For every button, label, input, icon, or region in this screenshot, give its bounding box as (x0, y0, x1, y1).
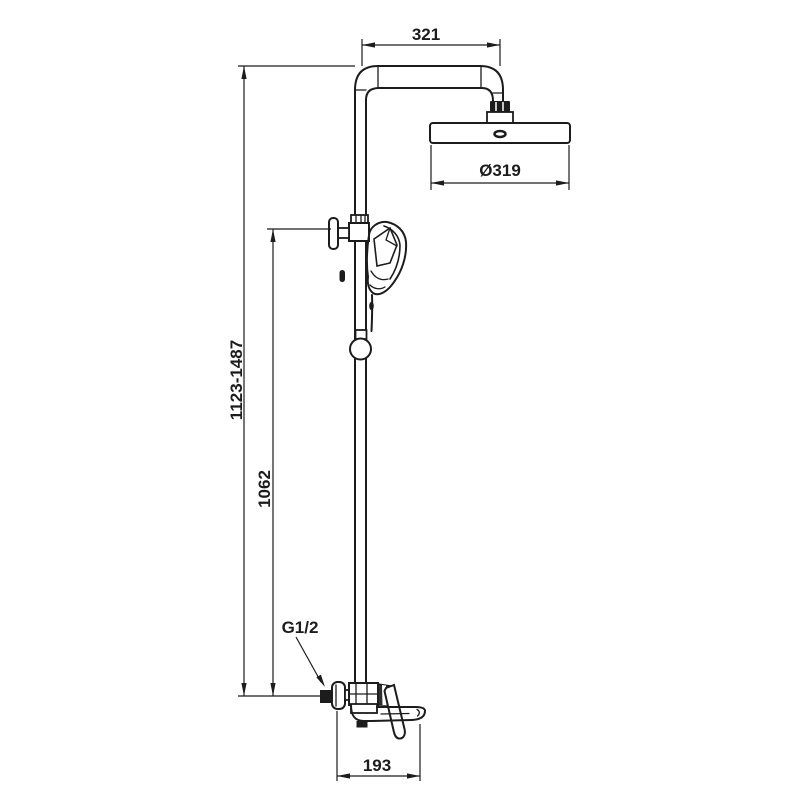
overhead-shower-head (430, 123, 570, 143)
hand-shower-handle (372, 295, 373, 331)
spout-projection-label: 193 (363, 756, 391, 775)
mixer-lever-handle (385, 685, 405, 739)
handle-clip (369, 302, 374, 311)
bath-mixer (320, 682, 425, 739)
drawing-canvas: 1123-1487 1062 321 Ø319 (0, 0, 800, 800)
height-range-label: 1123-1487 (227, 340, 246, 420)
slider-knob (350, 330, 371, 360)
riser-column (355, 89, 366, 683)
head-connector-nut (487, 101, 513, 123)
holder-lock (340, 270, 346, 282)
dimension-arm-projection: 321 (362, 25, 500, 66)
shower-arm (355, 66, 503, 101)
arm-projection-label: 321 (412, 25, 440, 44)
thread-label: G1/2 (282, 618, 319, 637)
diverter-valve (329, 215, 369, 249)
head-diameter-label: Ø319 (479, 161, 521, 180)
shower-system-technical-drawing: 1123-1487 1062 321 Ø319 (0, 0, 800, 800)
dimension-height-range: 1123-1487 (227, 66, 355, 696)
dimension-head-diameter: Ø319 (431, 145, 569, 190)
wall-flange (332, 682, 345, 709)
spout-aerator (357, 721, 368, 728)
diverter-t-handle (329, 218, 338, 249)
bath-spout (351, 704, 425, 728)
thread-callout: G1/2 (282, 618, 325, 687)
column-height-label: 1062 (255, 470, 274, 508)
